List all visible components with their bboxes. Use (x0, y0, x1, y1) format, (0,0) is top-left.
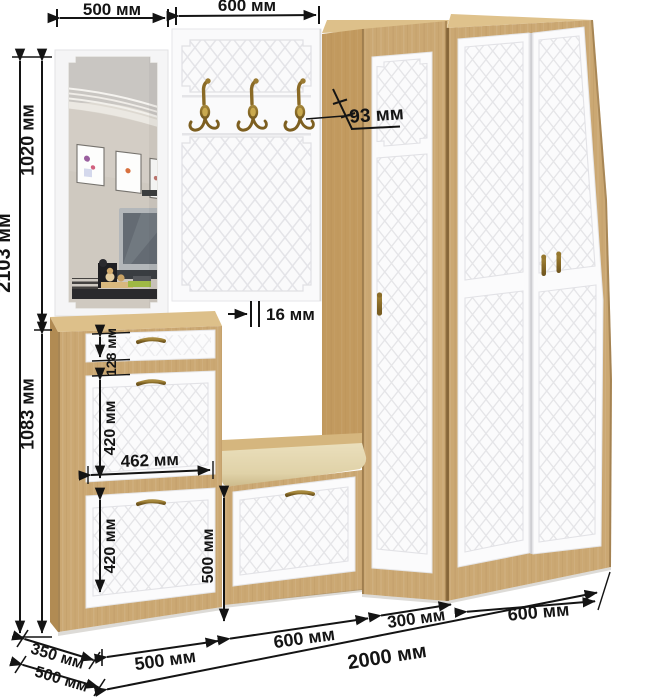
svg-text:128 мм: 128 мм (103, 328, 119, 376)
svg-text:2103 мм: 2103 мм (0, 213, 15, 293)
svg-text:16 мм: 16 мм (266, 305, 315, 324)
svg-text:500 мм: 500 мм (200, 529, 217, 584)
svg-text:420 мм: 420 мм (102, 401, 119, 456)
svg-text:600 мм: 600 мм (218, 0, 276, 15)
svg-text:500 мм: 500 мм (83, 0, 141, 19)
svg-text:93 мм: 93 мм (349, 103, 405, 128)
svg-text:420 мм: 420 мм (102, 519, 119, 574)
svg-text:1083 мм: 1083 мм (18, 378, 38, 450)
svg-text:1020 мм: 1020 мм (18, 104, 38, 176)
svg-text:462 мм: 462 мм (120, 450, 179, 471)
